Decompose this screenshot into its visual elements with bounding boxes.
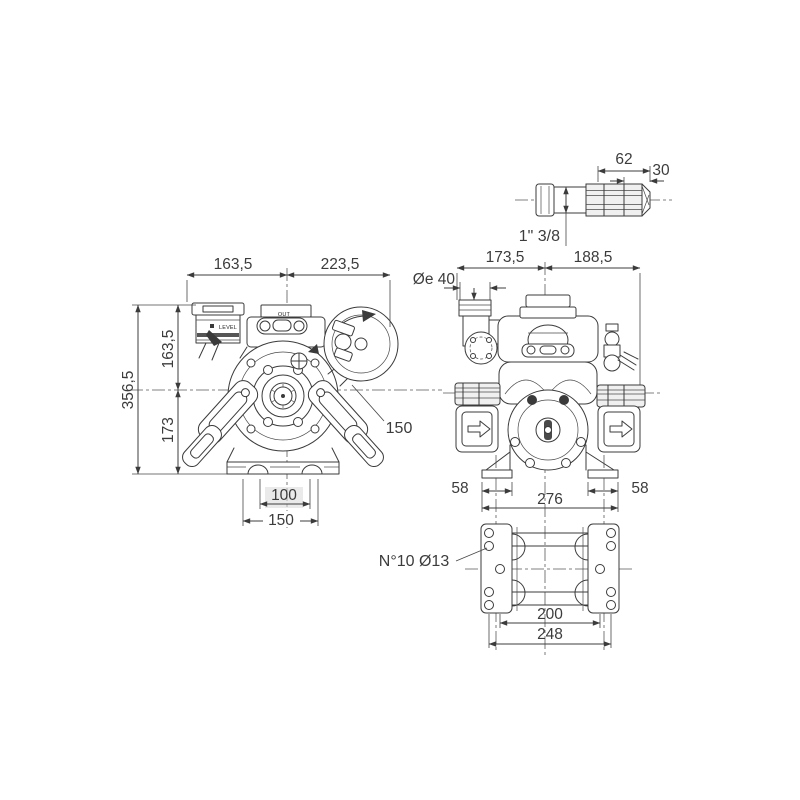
dim-text-upper-height: 163,5 [160, 330, 177, 369]
dim-side-feet: 58 58 276 [451, 480, 648, 512]
splined-shaft-drawing [536, 184, 650, 216]
front-view: LEVEL OUT [120, 256, 442, 529]
dim-text-shaft-length: 62 [615, 151, 632, 168]
dim-text-spline-length: 30 [652, 162, 670, 179]
technical-drawing-page: 62 30 1" 3/8 LE [0, 0, 800, 800]
dim-text-inner-hole-span: 200 [537, 606, 563, 623]
dim-text-total-height: 356,5 [120, 371, 137, 410]
left-pto-shaft [455, 383, 500, 405]
dim-text-base-inner: 100 [271, 487, 297, 504]
side-manifold [498, 295, 598, 362]
pressure-accumulator [324, 307, 398, 386]
dim-text-base-outer: 150 [268, 512, 294, 529]
dim-holes-note: N°10 Ø13 [379, 548, 487, 570]
left-mounting-plate [481, 524, 512, 613]
dim-text-lower-height: 173 [160, 417, 177, 443]
dim-text-side-top-right: 188,5 [574, 249, 613, 266]
right-port [598, 406, 640, 452]
dim-oil-fill: Øe 40 [413, 271, 506, 300]
right-pto-shaft [597, 385, 645, 407]
oil-filler [459, 300, 501, 364]
pump-dimensional-drawing: 62 30 1" 3/8 LE [0, 0, 800, 800]
dim-text-shaft-size: 1" 3/8 [519, 228, 560, 245]
front-base [227, 448, 339, 474]
side-pump-drawing [455, 295, 645, 478]
gearbox [508, 390, 588, 470]
dim-text-outer-hole-span: 248 [537, 626, 563, 643]
reservoir-level-label: LEVEL [219, 325, 237, 331]
dim-text-holes-note: N°10 Ø13 [379, 553, 450, 570]
dim-text-accumulator: 150 [386, 420, 413, 437]
base-plate-view: N°10 Ø13 200 248 [379, 524, 635, 648]
outlet-port-label: OUT [278, 312, 291, 318]
front-pump-drawing: LEVEL OUT [179, 303, 398, 474]
mounting-plates-drawing [481, 524, 619, 613]
dim-text-feet-span: 276 [537, 491, 563, 508]
left-port [456, 406, 498, 452]
right-mounting-plate [588, 524, 619, 613]
dim-text-left-foot: 58 [451, 480, 468, 497]
dim-text-side-top-left: 173,5 [486, 249, 525, 266]
oil-reservoir: LEVEL [192, 303, 244, 360]
dim-front-base-widths: 100 150 [243, 479, 318, 529]
dim-text-right-foot: 58 [631, 480, 648, 497]
dim-text-oil-fill: Øe 40 [413, 271, 456, 288]
side-view: 173,5 188,5 Øe 40 58 58 276 [413, 249, 662, 656]
dim-text-front-top-right: 223,5 [321, 256, 360, 273]
dim-text-front-top-left: 163,5 [214, 256, 253, 273]
shaft-detail-view: 62 30 1" 3/8 [515, 151, 672, 246]
pressure-regulator [604, 324, 638, 371]
